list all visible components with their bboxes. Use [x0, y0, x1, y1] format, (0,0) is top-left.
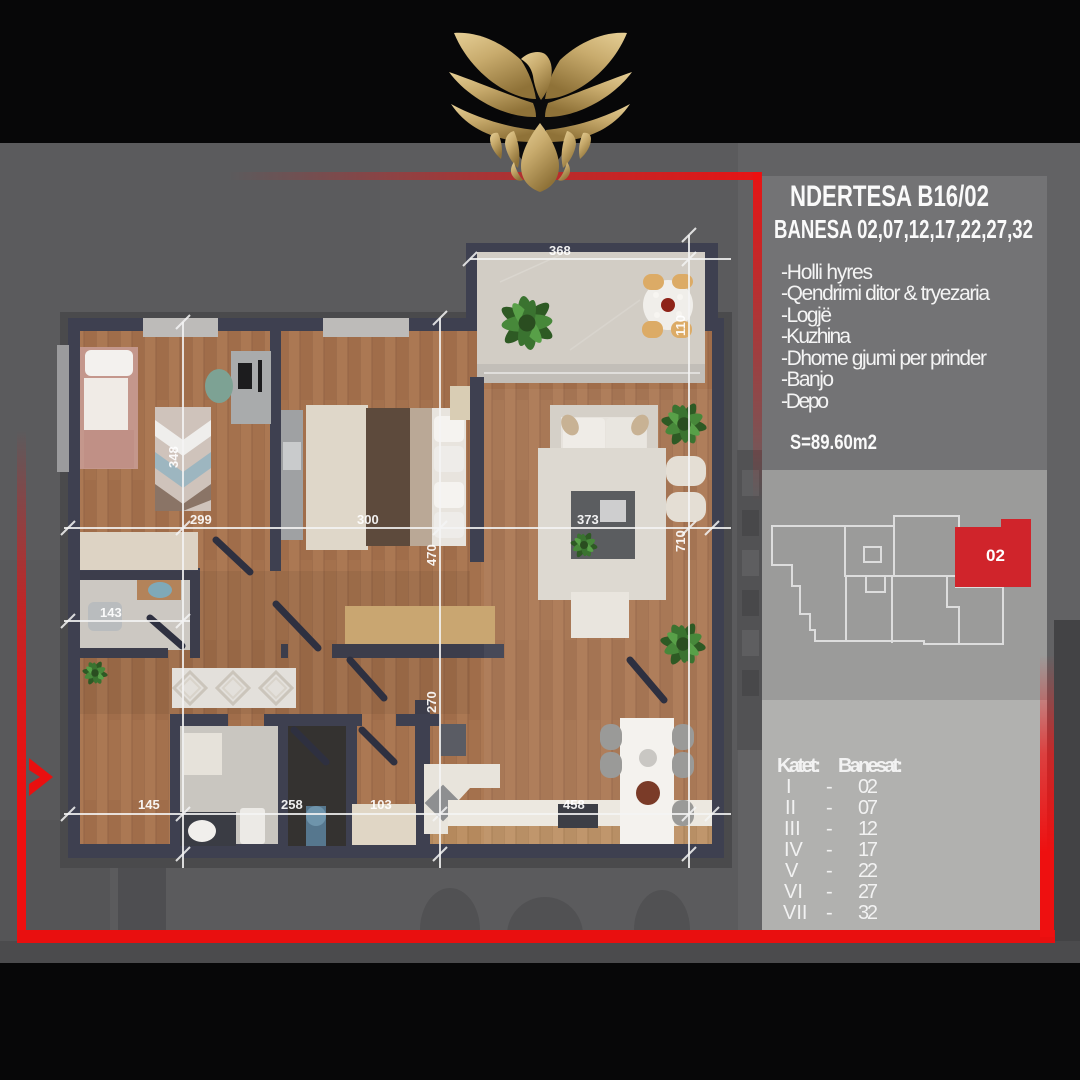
svg-text:470: 470 [424, 544, 439, 566]
svg-text:458: 458 [563, 797, 585, 812]
svg-text:V: V [785, 860, 799, 882]
svg-text:-Qendrimi ditor & tryezaria: -Qendrimi ditor & tryezaria [781, 282, 990, 305]
svg-text:-: - [826, 881, 833, 903]
svg-text:VI: VI [784, 881, 803, 903]
svg-text:-: - [826, 839, 833, 861]
svg-text:-: - [826, 776, 833, 798]
svg-text:32: 32 [858, 902, 878, 924]
svg-text:258: 258 [281, 797, 303, 812]
svg-text:02: 02 [986, 546, 1005, 565]
svg-text:S=89.60m2: S=89.60m2 [790, 431, 877, 454]
svg-text:-: - [826, 818, 833, 840]
svg-text:103: 103 [370, 797, 392, 812]
svg-text:02: 02 [858, 776, 878, 798]
svg-text:IV: IV [784, 839, 804, 861]
svg-text:-Banjo: -Banjo [781, 368, 834, 391]
svg-text:145: 145 [138, 797, 160, 812]
svg-text:I: I [786, 776, 792, 798]
svg-text:Banesat:: Banesat: [838, 755, 903, 777]
svg-text:-: - [826, 797, 833, 819]
svg-text:373: 373 [577, 512, 599, 527]
svg-text:710: 710 [673, 530, 688, 552]
svg-text:-Kuzhina: -Kuzhina [781, 325, 851, 348]
svg-text:17: 17 [858, 839, 878, 861]
svg-text:II: II [785, 797, 796, 819]
svg-text:22: 22 [858, 860, 878, 882]
svg-text:27: 27 [858, 881, 878, 903]
svg-text:BANESA 02,07,12,17,22,27,32: BANESA 02,07,12,17,22,27,32 [774, 214, 1033, 244]
svg-text:Katet:: Katet: [777, 755, 821, 777]
svg-text:348: 348 [166, 446, 181, 468]
svg-text:-Dhome gjumi per prinder: -Dhome gjumi per prinder [781, 347, 987, 370]
svg-text:110: 110 [673, 315, 688, 336]
svg-text:368: 368 [549, 243, 571, 258]
svg-text:300: 300 [357, 512, 379, 527]
svg-text:-: - [826, 902, 833, 924]
svg-text:-Holli hyres: -Holli hyres [781, 261, 873, 284]
svg-text:-: - [826, 860, 833, 882]
svg-text:III: III [784, 818, 801, 840]
svg-text:299: 299 [190, 512, 212, 527]
svg-text:12: 12 [858, 818, 878, 840]
svg-text:143: 143 [100, 605, 122, 620]
svg-text:-Depo: -Depo [781, 390, 829, 413]
svg-text:VII: VII [783, 902, 807, 924]
svg-text:07: 07 [858, 797, 878, 819]
svg-text:-Logjë: -Logjë [781, 304, 832, 327]
svg-text:NDERTESA B16/02: NDERTESA B16/02 [790, 180, 989, 213]
svg-text:270: 270 [424, 691, 439, 713]
